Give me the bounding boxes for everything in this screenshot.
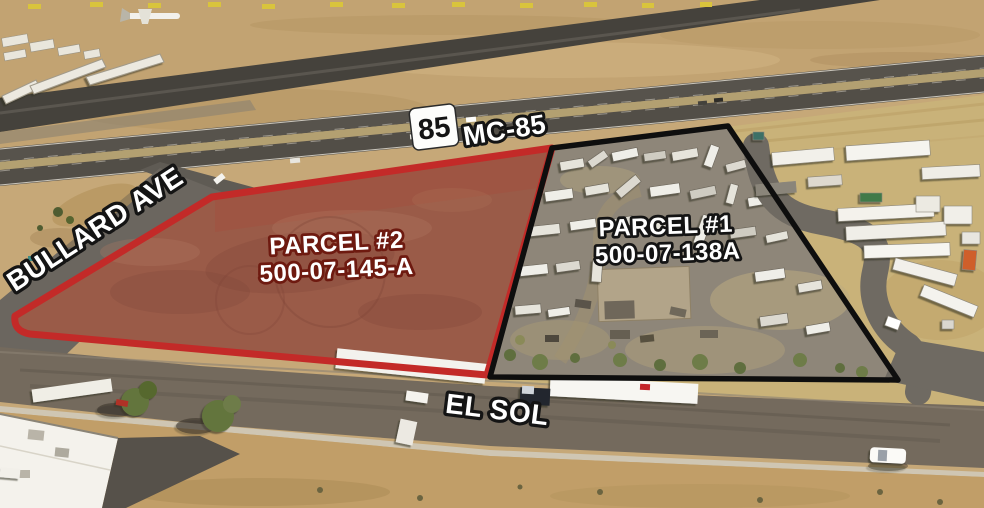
orange-truck [962, 250, 977, 271]
parcel-2-label: PARCEL #2 500-07-145-A [259, 227, 414, 289]
route-85-shield: 85 [409, 103, 460, 150]
aerial-parcel-map: 85 MC-85 BULLARD AVE EL SOL PARCEL #2 50… [0, 0, 984, 508]
parcel-1-apn: 500-07-138A [595, 237, 741, 269]
aerial-photo: 85 MC-85 BULLARD AVE EL SOL PARCEL #2 50… [0, 0, 984, 508]
route-85-number: 85 [416, 111, 452, 147]
parcel-1-label: PARCEL #1 500-07-138A [595, 211, 741, 270]
white-car-el-sol [868, 447, 908, 471]
